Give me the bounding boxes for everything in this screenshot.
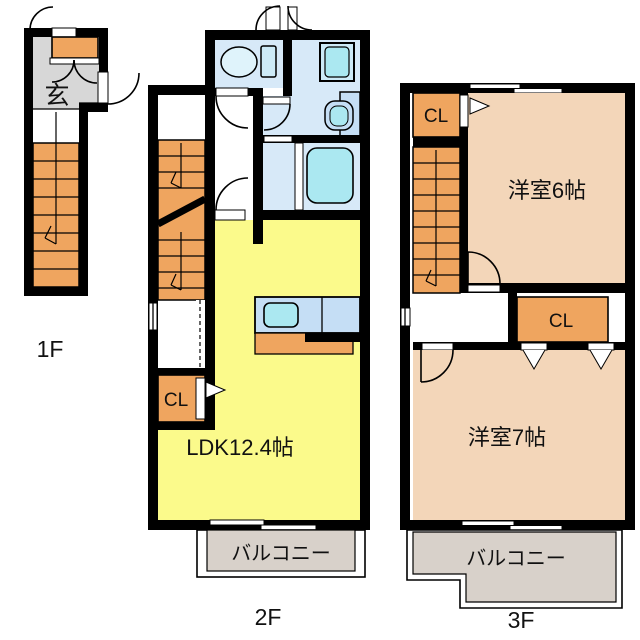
wash-basin-bowl [330, 106, 348, 126]
closet-mid-label: CL [549, 311, 573, 332]
sliding-window-pane [470, 84, 520, 89]
bath-sliding-door [295, 143, 303, 210]
sliding-window-pane [514, 89, 562, 94]
floor-plan-drawing: 玄 1F [0, 0, 640, 640]
door-leaf [216, 88, 248, 96]
hall-closet-wall [508, 290, 517, 350]
door-leaf [422, 343, 453, 350]
wall-stub [253, 220, 263, 244]
door-leaf [266, 7, 280, 30]
bathtub [307, 148, 353, 203]
balcony-label-3f: バルコニー [466, 548, 566, 570]
floor-plan-1f: 玄 1F [24, 7, 139, 362]
closet-wall [413, 137, 460, 147]
toilet-tank [261, 46, 276, 77]
toilet-washroom-wall [283, 40, 292, 96]
door-swing-arc [30, 7, 53, 30]
closet-door-leaf [460, 95, 468, 127]
folding-door-leaf [588, 343, 614, 350]
closet-label-2f: CL [164, 390, 188, 411]
shoe-cabinet [52, 37, 98, 58]
ldk-label: LDK12.4帖 [186, 435, 294, 460]
bedroom7-label: 洋室7帖 [468, 425, 546, 450]
bedroom6-label: 洋室6帖 [508, 178, 586, 203]
floor-plan-2f: CL LDK12.4帖 バルコニー 2F [148, 6, 370, 630]
closet-wall-bottom [158, 422, 205, 430]
folding-door-leaf [264, 136, 292, 142]
inner-wall [205, 95, 215, 430]
floor-plan-3f: 洋室6帖 CL CL [400, 83, 635, 633]
door-leaf [263, 97, 290, 104]
stairs-3f [413, 147, 460, 293]
sliding-window-pane [210, 520, 264, 525]
sliding-window-pane [462, 521, 514, 526]
closet-door-leaf [196, 378, 205, 419]
door-leaf [215, 210, 245, 220]
folding-door-leaf [521, 343, 547, 350]
closet-wall [158, 368, 205, 375]
kitchen-wall-notch [305, 333, 360, 342]
washing-machine-drum [325, 47, 349, 77]
water-area-bottom-wall [253, 210, 360, 220]
balcony-label-2f: バルコニー [231, 543, 331, 565]
entrance-label: 玄 [44, 82, 69, 110]
floor-plan-page: 玄 1F [0, 0, 640, 640]
door-swing-arc [108, 73, 139, 104]
door-leaf [468, 285, 500, 292]
floor-label-1f: 1F [37, 336, 64, 362]
kitchen-sink [264, 303, 298, 327]
toilet-bowl [221, 47, 257, 77]
floor-label-3f: 3F [508, 607, 535, 633]
floor-label-2f: 2F [255, 604, 282, 630]
stairs-2f [158, 140, 205, 300]
closet-top-label: CL [424, 106, 448, 127]
door-leaf [288, 7, 297, 30]
door-leaf [98, 72, 108, 103]
